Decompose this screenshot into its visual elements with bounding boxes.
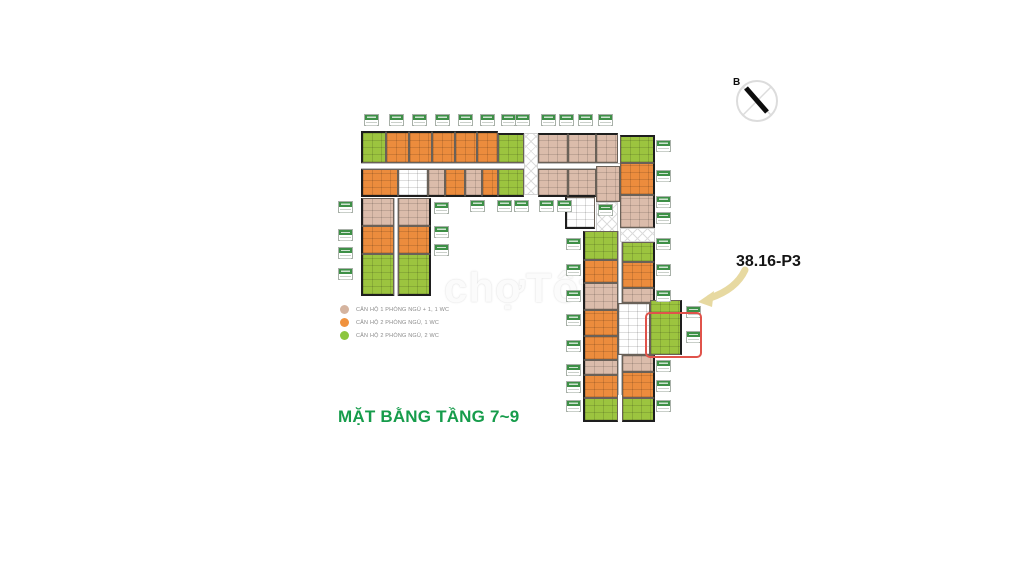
unit-label-chip [656,400,671,412]
unit-label-chip [389,114,404,126]
floor-plan-unit [622,262,655,288]
floor-plan-unit [583,310,618,336]
legend: CĂN HỘ 1 PHÒNG NGỦ + 1, 1 WC CĂN HỘ 2 PH… [340,303,449,342]
page-title: MẶT BẰNG TẦNG 7~9 [338,407,519,427]
floor-plan-unit [524,133,538,195]
floor-plan-unit [583,360,618,375]
legend-row-2br-1wc: CĂN HỘ 2 PHÒNG NGỦ, 1 WC [340,316,449,329]
floor-plan-unit [445,169,465,197]
floor-plan-unit [498,169,524,197]
unit-label-chip [656,170,671,182]
unit-label-chip [434,244,449,256]
unit-label-chip [338,247,353,259]
floor-plan-unit [361,131,386,163]
unit-label-chip [434,202,449,214]
floor-plan-unit [432,131,455,163]
unit-label-chip [412,114,427,126]
floor-plan-unit [583,336,618,360]
floor-plan-unit [583,231,618,260]
floor-plan-unit [622,372,655,398]
unit-label-chip [566,381,581,393]
floor-plan-unit [538,133,568,163]
floor-plan-unit [361,169,398,197]
unit-label-chip [559,114,574,126]
legend-swatch-tan [340,305,349,314]
unit-label-chip [566,340,581,352]
floor-plan-unit [620,163,655,195]
floor-plan-unit [482,169,498,197]
unit-label-chip [338,201,353,213]
floor-plan-unit [361,226,394,254]
floor-plan-unit [398,226,431,254]
floor-plan-unit [568,133,596,163]
floor-plan-unit [583,260,618,283]
legend-swatch-green [340,331,349,340]
floor-plan-unit [455,131,477,163]
floor-plan-unit [622,242,655,262]
unit-label-chip [566,264,581,276]
unit-label-chip [364,114,379,126]
unit-label-chip [458,114,473,126]
highlighted-unit-outline [645,312,702,358]
unit-label-chip [566,238,581,250]
unit-label-chip [566,290,581,302]
floor-plan-unit [583,283,618,310]
floor-plan-unit [398,198,431,226]
unit-label-chip [566,364,581,376]
floor-plan-unit [620,195,655,228]
unit-label-chip [434,226,449,238]
legend-row-1br: CĂN HỘ 1 PHÒNG NGỦ + 1, 1 WC [340,303,449,316]
unit-label-chip [338,229,353,241]
floor-plan-unit [498,133,524,163]
floor-plan-unit [409,131,432,163]
floor-plan-unit [386,131,409,163]
unit-label-chip [497,200,512,212]
floor-plan-unit [622,398,655,422]
legend-label-2br-2wc: CĂN HỘ 2 PHÒNG NGỦ, 2 WC [356,333,439,339]
floor-plan-unit [361,198,394,226]
floor-plan-unit [361,254,394,296]
unit-label-chip [566,314,581,326]
unit-label-chip [656,212,671,224]
legend-label-2br-1wc: CĂN HỘ 2 PHÒNG NGỦ, 1 WC [356,320,439,326]
floor-plan-unit [583,375,618,398]
unit-label-chip [598,114,613,126]
unit-label-chip [656,360,671,372]
floor-plan-unit [596,166,620,202]
unit-label-chip [598,204,613,216]
unit-label-chip [435,114,450,126]
unit-label-chip [656,196,671,208]
compass-north-label: B [733,77,740,88]
unit-label-chip [656,380,671,392]
unit-label-chip [338,268,353,280]
floor-plan-unit [568,169,596,197]
unit-label-chip [541,114,556,126]
unit-label-chip [656,264,671,276]
floor-plan-unit [620,228,655,242]
compass-icon: B [728,72,788,132]
unit-annotation: 38.16-P3 [736,253,801,271]
floor-plan-unit [398,254,431,296]
unit-label-chip [656,290,671,302]
floor-plan-page: chợTốt B 38.16-P3 CĂN HỘ 1 PHÒNG NGỦ + 1… [0,0,1024,575]
floor-plan-unit [538,169,568,197]
unit-label-chip [480,114,495,126]
floor-plan-unit [620,135,655,163]
unit-label-chip [515,114,530,126]
unit-label-chip [557,200,572,212]
unit-label-chip [578,114,593,126]
unit-label-chip [566,400,581,412]
floor-plan-unit [596,133,618,163]
floor-plan-unit [583,398,618,422]
legend-swatch-orange [340,318,349,327]
unit-label-chip [656,140,671,152]
unit-label-chip [539,200,554,212]
legend-row-2br-2wc: CĂN HỘ 2 PHÒNG NGỦ, 2 WC [340,329,449,342]
floor-plan-unit [477,131,498,163]
floor-plan-unit [428,169,445,197]
legend-label-1br: CĂN HỘ 1 PHÒNG NGỦ + 1, 1 WC [356,307,449,313]
floor-plan-unit [465,169,482,197]
unit-label-chip [656,238,671,250]
unit-label-chip [470,200,485,212]
unit-label-chip [514,200,529,212]
floor-plan-unit [398,169,428,197]
unit-label-chip [501,114,516,126]
